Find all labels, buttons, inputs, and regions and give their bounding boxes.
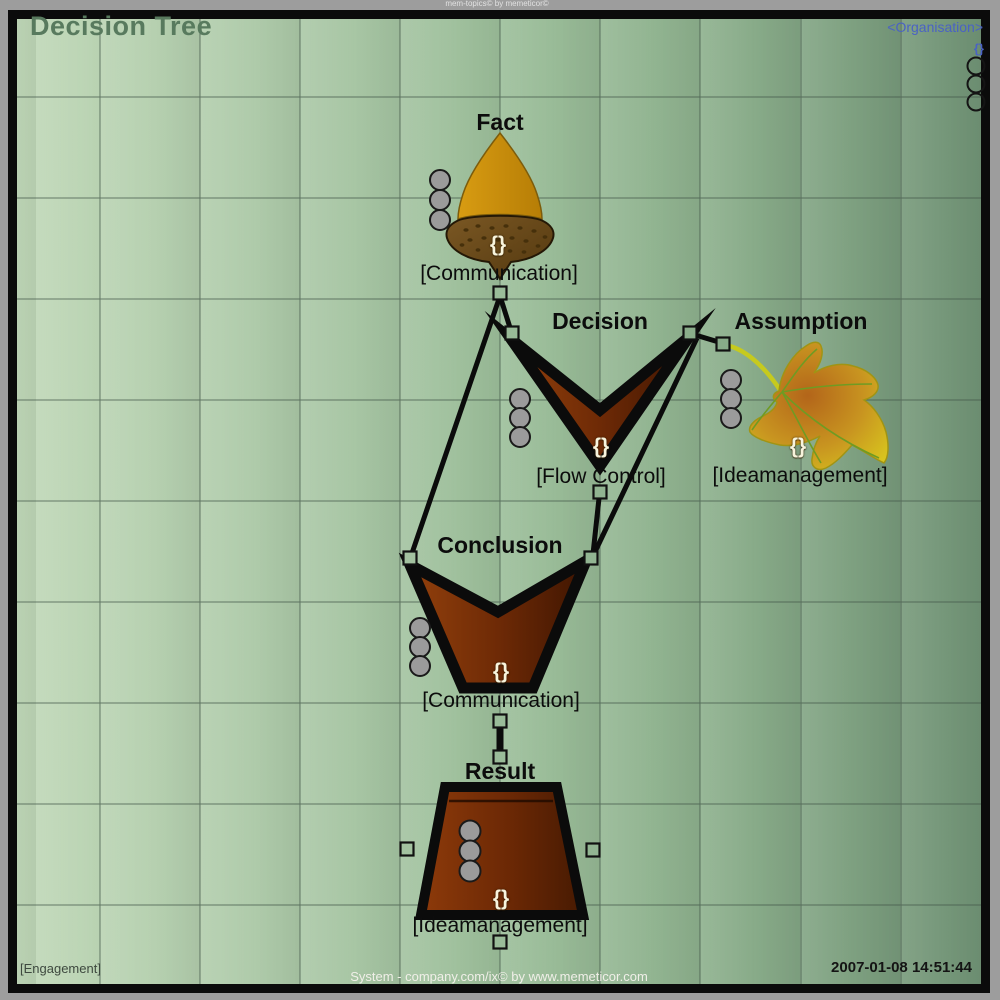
handle-result-left[interactable] [401,843,414,856]
node-decision-tag: [Flow Control] [536,465,666,488]
conclusion-dots-indicator[interactable] [410,618,430,676]
organisation-link[interactable]: <Organisation> [887,20,983,35]
acorn-icon[interactable] [446,133,553,279]
node-assumption-braces: {} [790,435,806,458]
node-conclusion-label[interactable]: Conclusion [437,533,562,558]
node-assumption-label[interactable]: Assumption [735,309,868,334]
node-conclusion-braces: {} [493,660,509,683]
node-result-braces: {} [493,887,509,910]
timestamp: 2007-01-08 14:51:44 [831,960,972,977]
node-fact-braces: {} [490,233,506,256]
node-result-tag: [Ideamanagement] [412,914,587,937]
result-dots-indicator[interactable] [460,821,481,882]
assumption-dots-indicator[interactable] [721,370,741,428]
handle-conclusion-topright[interactable] [585,552,598,565]
application-window: mem-topics© by memeticor© [0,0,1000,1000]
node-decision-label[interactable]: Decision [552,309,648,334]
handle-decision-topright[interactable] [684,327,697,340]
handle-decision-topleft[interactable] [506,327,519,340]
handle-assumption-stem[interactable] [717,338,730,351]
handle-result-right[interactable] [587,844,600,857]
node-result-label[interactable]: Result [465,759,535,784]
page-title: Decision Tree [30,12,212,42]
node-decision-braces: {} [593,435,609,458]
handle-conclusion-topleft[interactable] [404,552,417,565]
handle-conclusion-bottom[interactable] [494,715,507,728]
diagram-graphics [0,0,1000,1000]
fact-dots-indicator[interactable] [430,170,450,230]
handle-fact-bottom[interactable] [494,287,507,300]
edge-fact-conclusion[interactable] [410,296,500,559]
organisation-braces: {} [974,42,984,56]
engagement-label: [Engagement] [20,962,101,976]
node-assumption-tag: [Ideamanagement] [712,464,887,487]
system-credit: System - company.com/ix© by www.memetico… [350,970,648,984]
node-conclusion-tag: [Communication] [422,689,580,712]
handle-result-bottom[interactable] [494,936,507,949]
node-fact-tag: [Communication] [420,262,578,285]
node-fact-label[interactable]: Fact [476,110,523,135]
decision-dots-indicator[interactable] [510,389,530,447]
organisation-dots-indicator[interactable] [968,58,985,111]
